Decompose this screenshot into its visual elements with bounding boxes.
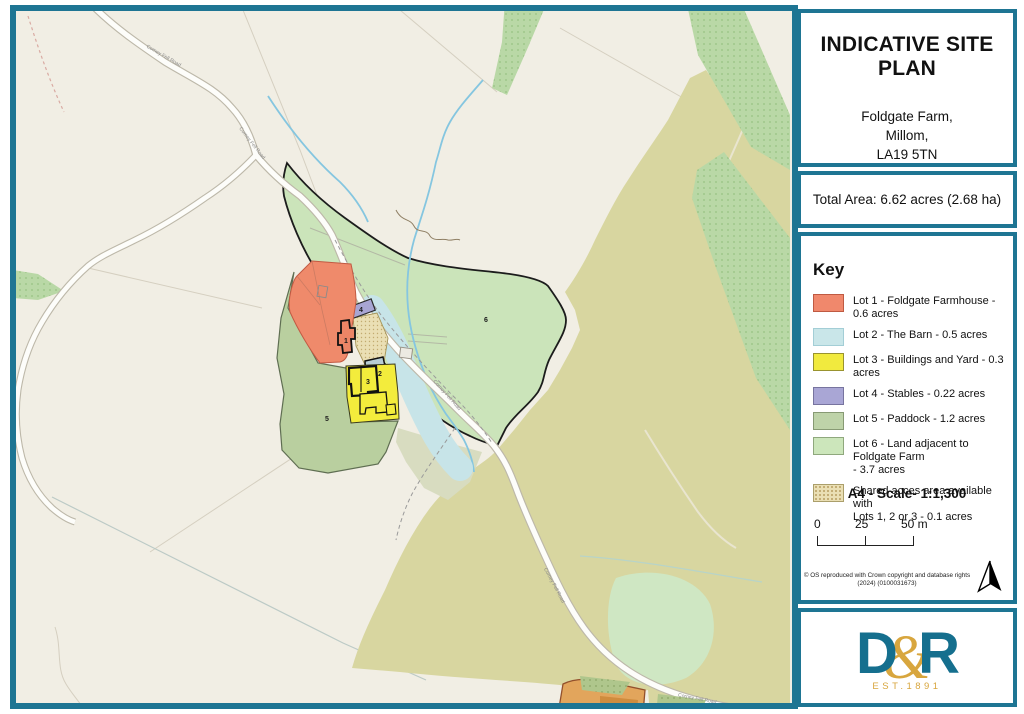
title-box: INDICATIVE SITE PLAN Foldgate Farm, Mill… xyxy=(797,9,1017,167)
key-heading: Key xyxy=(813,260,1013,280)
copyright-line: © OS reproduced with Crown copyright and… xyxy=(803,572,971,580)
lot-2-swatch xyxy=(813,328,844,346)
legend-item-lot2: Lot 2 - The Barn - 0.5 acres xyxy=(813,328,1009,346)
scalebar-label-0: 0 xyxy=(814,517,821,531)
site-plan-page: 1 2 3 4 5 6 Corney Fell Road Corney Fell… xyxy=(0,0,1024,714)
scale-text: A4 - Scale- 1:1,300 xyxy=(801,486,1013,501)
lot-4-label: 4 xyxy=(359,307,363,314)
scalebar-tick xyxy=(913,536,914,546)
legend-label: Lot 4 - Stables - 0.22 acres xyxy=(853,387,985,405)
legend-item-lot6: Lot 6 - Land adjacent to Foldgate Farm -… xyxy=(813,437,1009,477)
agency-logo-box: D & R EST.1891 xyxy=(797,608,1017,707)
address-line: Millom, xyxy=(801,126,1013,145)
legend-label: Lot 2 - The Barn - 0.5 acres xyxy=(853,328,987,346)
lot-3-swatch xyxy=(813,353,844,371)
legend-item-lot3: Lot 3 - Buildings and Yard - 0.3 acres xyxy=(813,353,1009,380)
scalebar-label-50: 50 m xyxy=(901,517,928,531)
legend-label: Lot 6 - Land adjacent to Foldgate Farm -… xyxy=(853,437,1009,477)
site-plan-map: 1 2 3 4 5 6 Corney Fell Road Corney Fell… xyxy=(10,5,798,709)
lot-6-swatch xyxy=(813,437,844,455)
legend-label: Lot 3 - Buildings and Yard - 0.3 acres xyxy=(853,353,1009,380)
lot-5-swatch xyxy=(813,412,844,430)
address-line: Foldgate Farm, xyxy=(801,107,1013,126)
scalebar-tick xyxy=(865,536,866,546)
page-title: INDICATIVE SITE PLAN xyxy=(801,33,1013,81)
lot-4-swatch xyxy=(813,387,844,405)
scalebar xyxy=(817,545,914,546)
legend-item-lot5: Lot 5 - Paddock - 1.2 acres xyxy=(813,412,1009,430)
os-copyright: © OS reproduced with Crown copyright and… xyxy=(803,572,971,588)
lot-5-label: 5 xyxy=(325,416,329,423)
logo-letter-r: R xyxy=(918,625,958,683)
lot-6-label: 6 xyxy=(484,317,488,324)
legend-label: Lot 1 - Foldgate Farmhouse - 0.6 acres xyxy=(853,294,1009,321)
agency-logo: D & R xyxy=(856,623,958,685)
legend-label: Lot 5 - Paddock - 1.2 acres xyxy=(853,412,985,430)
total-area-box: Total Area: 6.62 acres (2.68 ha) xyxy=(797,171,1017,228)
logo-letter-d: D xyxy=(856,625,896,683)
legend-label-line: Lots 1, 2 or 3 - 0.1 acres xyxy=(853,511,1009,524)
copyright-line: (2024) (0100031673) xyxy=(803,580,971,588)
gray-building xyxy=(399,347,412,359)
legend-item-lot4: Lot 4 - Stables - 0.22 acres xyxy=(813,387,1009,405)
key-box: Key Lot 1 - Foldgate Farmhouse - 0.6 acr… xyxy=(797,232,1017,604)
legend-item-lot1: Lot 1 - Foldgate Farmhouse - 0.6 acres xyxy=(813,294,1009,321)
scalebar-tick xyxy=(817,536,818,546)
property-address: Foldgate Farm, Millom, LA19 5TN xyxy=(801,107,1013,164)
address-line: LA19 5TN xyxy=(801,145,1013,164)
lot-1-swatch xyxy=(813,294,844,312)
legend-label-line: Lot 6 - Land adjacent to Foldgate Farm xyxy=(853,438,1009,464)
lot-2-label: 2 xyxy=(378,371,382,378)
lot-3-polygons xyxy=(346,364,399,423)
total-area-text: Total Area: 6.62 acres (2.68 ha) xyxy=(813,192,1001,207)
map-panel: 1 2 3 4 5 6 Corney Fell Road Corney Fell… xyxy=(10,5,798,709)
lot-3-label: 3 xyxy=(366,379,370,386)
north-arrow-icon xyxy=(975,558,1005,594)
lot-1-label: 1 xyxy=(344,338,348,345)
scalebar-label-25: 25 xyxy=(855,517,868,531)
legend-label-line: - 3.7 acres xyxy=(853,464,1009,477)
